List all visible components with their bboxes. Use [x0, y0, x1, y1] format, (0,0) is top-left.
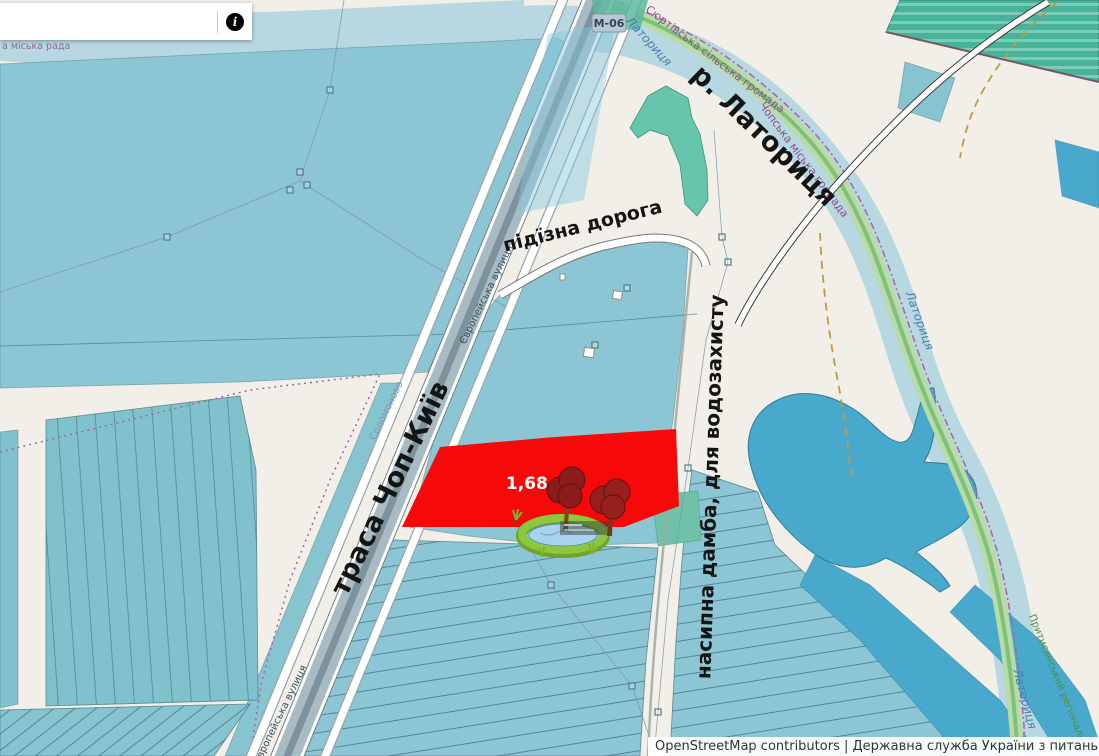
road-ref-label: М-06 [594, 17, 625, 30]
search-box: i [0, 3, 252, 40]
attribution-bar: OpenStreetMap contributors | Державна сл… [648, 737, 1099, 756]
info-icon: i [226, 13, 244, 31]
field-far-left-strip [0, 430, 18, 708]
search-input[interactable] [0, 3, 217, 40]
rada-fragment-label: а міська рада [2, 41, 70, 52]
map-layers: 1,68 га М-06 Латориця Латориця Латориця [0, 0, 1099, 756]
clipart-watermark [560, 521, 608, 535]
map-canvas[interactable]: 1,68 га М-06 Латориця Латориця Латориця [0, 0, 1099, 756]
road-shield-m06: М-06 [592, 14, 626, 32]
field-bottom-left-hatched [0, 704, 250, 756]
field-furrowed [46, 396, 258, 706]
info-button[interactable]: i [218, 3, 252, 40]
